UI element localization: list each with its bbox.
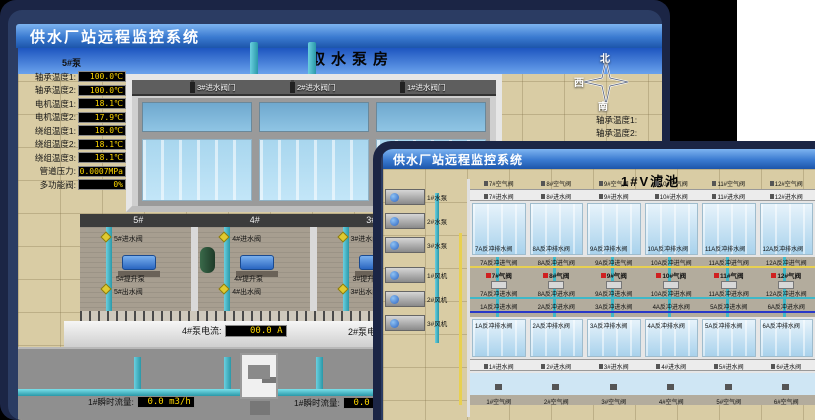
pump-current-meter: 4#泵电流: 00.0 A <box>182 324 287 337</box>
backwash-water-valve-label[interactable]: 5A反冲进水阀 <box>700 302 758 311</box>
equipment-box-icon <box>606 281 622 289</box>
backwash-drain-label: 3A反冲排水阀 <box>590 321 627 330</box>
back-window-title: 供水厂站远程监控系统 <box>30 26 200 47</box>
gas-valve-icon <box>543 273 548 278</box>
equipment-box <box>385 315 425 331</box>
filter-cell[interactable]: 11A反冲排水阀 <box>702 203 756 255</box>
bottom-channel <box>470 371 815 395</box>
backwash-drain-label: 12A反冲排水阀 <box>763 244 804 253</box>
filter-grid: 7#空气阀8#空气阀9#空气阀10#空气阀11#空气阀12#空气阀 7#进水阀8… <box>467 179 815 417</box>
meter-value-display[interactable]: 00.0 A <box>225 325 287 337</box>
gate-valve-icon <box>290 82 295 93</box>
gallery-equipment <box>470 281 528 289</box>
backwash-drain-label: 2A反冲排水阀 <box>533 321 570 330</box>
backwash-drain-label: 5A反冲排水阀 <box>705 321 742 330</box>
outlet-valve-label: 5#出水阀 <box>114 287 143 297</box>
backwash-water-valve-label[interactable]: 3A反冲进水阀 <box>585 302 643 311</box>
pool-cell <box>259 102 369 132</box>
top-filter-cells: 7A反冲排水阀 8A反冲排水阀 9A反冲排水阀 <box>470 201 815 257</box>
filter-scene: 1#V滤池 1#水泵 <box>383 169 815 420</box>
scene-title-pumphouse: 取水泵房 <box>310 48 394 69</box>
equipment-label: 1#水泵 <box>427 192 447 202</box>
air-valve-label[interactable]: 8#空气阀 <box>528 179 586 188</box>
backwash-air-valve-label[interactable]: 12A反冲进气阀 <box>758 258 815 267</box>
inlet-valve-label[interactable]: 8#进水阀 <box>528 192 586 201</box>
back-window-titlebar[interactable]: 供水厂站远程监控系统 <box>16 24 662 48</box>
pump-icon <box>390 241 399 250</box>
page-background-corner <box>737 0 815 148</box>
channel-valve[interactable] <box>470 373 528 395</box>
metric-value-display[interactable]: 100.0℃ <box>78 71 126 82</box>
top-air-valve-labels: 7#空气阀8#空气阀9#空气阀10#空气阀11#空气阀12#空气阀 <box>470 179 815 188</box>
gas-valve[interactable]: 12#气阀 <box>758 270 815 280</box>
metric-value-display[interactable]: 17.9℃ <box>78 112 126 123</box>
inlet-valve-label[interactable]: 6#进水阀 <box>758 362 815 371</box>
valve-gallery: 7A反冲进气阀8A反冲进气阀9A反冲进气阀10A反冲进气阀11A反冲进气阀12A… <box>470 257 815 317</box>
pump-bay: 5#进水阀 5#提升泵 5#出水阀 <box>80 227 191 311</box>
filter-cell[interactable]: 5A反冲排水阀 <box>702 319 756 357</box>
backwash-water-valve-label[interactable]: 7A反冲进水阀 <box>470 289 528 298</box>
valve-icon <box>655 181 659 186</box>
gate-valve-icon <box>400 82 405 93</box>
metric-value-display[interactable]: 0% <box>78 179 126 190</box>
valve-icon <box>656 364 660 369</box>
backwash-drain-label: 1A反冲排水阀 <box>475 321 512 330</box>
gas-valve-icon <box>601 273 606 278</box>
equipment-box <box>385 237 425 253</box>
pipe-stub <box>224 357 231 391</box>
equipment-box-icon <box>491 281 507 289</box>
gallery-equipment <box>585 281 643 289</box>
metric-row: 轴承温度2: 100.0℃ <box>26 84 136 98</box>
metric-label: 电机温度2: <box>26 111 76 123</box>
filter-cell[interactable]: 9A反冲排水阀 <box>587 203 641 255</box>
valve-icon <box>484 364 488 369</box>
filter-cell[interactable]: 8A反冲排水阀 <box>530 203 584 255</box>
gate-valve-icon <box>190 82 195 93</box>
valve-icon <box>712 194 716 199</box>
metric-label: 绕组温度2: <box>26 138 76 150</box>
filter-cell[interactable]: 7A反冲排水阀 <box>472 203 526 255</box>
metric-value-display[interactable]: 18.1℃ <box>78 98 126 109</box>
metric-label: 管道压力: <box>26 165 76 177</box>
metric-label: 多功能阀: <box>26 179 76 191</box>
air-valve-label[interactable]: 6#空气阀 <box>758 397 815 406</box>
air-valve-label[interactable]: 11#空气阀 <box>700 179 758 188</box>
air-valve-label[interactable]: 3#空气阀 <box>585 397 643 406</box>
filter-cell[interactable]: 2A反冲排水阀 <box>530 319 584 357</box>
lift-pump-icon[interactable] <box>240 255 274 270</box>
compass-icon: 北 西 南 <box>574 50 638 114</box>
bottom-inlet-labels: 1#进水阀2#进水阀3#进水阀4#进水阀5#进水阀6#进水阀 <box>470 362 815 371</box>
inlet-valve-label[interactable]: 5#进水阀 <box>700 362 758 371</box>
valve-icon <box>770 194 774 199</box>
valve-icon <box>667 384 674 390</box>
compass-south-label: 南 <box>598 98 608 113</box>
backwash-air-valve-label[interactable]: 9A反冲进气阀 <box>585 258 643 267</box>
equipment-unit[interactable]: 2#水泵 <box>385 209 465 233</box>
air-valve-label[interactable]: 7#空气阀 <box>470 179 528 188</box>
scada-desktop: 供水厂站远程监控系统 取水泵房 北 西 南 轴承 <box>0 0 815 420</box>
metric-value-display[interactable]: 18.1℃ <box>78 139 126 150</box>
backwash-drain-label: 6A反冲排水阀 <box>763 321 800 330</box>
pump-icon <box>390 319 399 328</box>
pump-bay-id: 4# <box>197 214 314 227</box>
metric-value-display[interactable]: 100.0℃ <box>78 85 126 96</box>
inlet-valve-label[interactable]: 9#进水阀 <box>585 192 643 201</box>
inlet-valve-label[interactable]: 7#进水阀 <box>470 192 528 201</box>
gate-valve-label: 1#进水阀门 <box>407 82 445 93</box>
metric-label: 轴承温度2: <box>596 127 637 140</box>
filter-cell[interactable]: 6A反冲排水阀 <box>760 319 814 357</box>
valve-icon <box>599 194 603 199</box>
backwash-air-valve-label[interactable]: 7A反冲进气阀 <box>470 258 528 267</box>
gas-valve[interactable]: 9#气阀 <box>585 270 643 280</box>
metric-label: 电机温度1: <box>26 98 76 110</box>
lift-pump-icon[interactable] <box>122 255 156 270</box>
meter-value-display[interactable]: 0.0 m3/h <box>137 396 195 408</box>
gas-valve-icon <box>771 273 776 278</box>
flow-equipment-cabinet[interactable] <box>240 353 278 399</box>
backwash-water-valve-label[interactable]: 12A反冲进水阀 <box>758 289 815 298</box>
valve-icon <box>771 364 775 369</box>
backwash-water-valve-label[interactable]: 9A反冲进水阀 <box>585 289 643 298</box>
metric-label: 轴承温度2: <box>26 84 76 96</box>
right-edge-metric-labels: 轴承温度1:轴承温度2: <box>596 114 637 140</box>
pump-icon <box>248 365 270 379</box>
bottom-filter-cells: 1A反冲排水阀 2A反冲排水阀 3A反冲排水阀 <box>470 317 815 359</box>
backwash-water-valve-label[interactable]: 1A反冲进水阀 <box>470 302 528 311</box>
front-window-titlebar[interactable]: 供水厂站远程监控系统 <box>383 149 815 169</box>
inlet-valve-label[interactable]: 1#进水阀 <box>470 362 528 371</box>
lift-pump-label: 4#提升泵 <box>234 274 263 284</box>
gate-valve[interactable]: 3#进水阀门 <box>190 82 235 93</box>
inlet-valve-label[interactable]: 4#进水阀 <box>643 362 701 371</box>
valve-icon <box>495 384 502 390</box>
pump-fan-column: 1#水泵 2#水泵 <box>385 185 465 335</box>
valve-icon <box>484 194 488 199</box>
pool-cell <box>259 139 369 201</box>
window-front-frame[interactable]: 供水厂站远程监控系统 1#V滤池 1#水泵 <box>373 141 815 420</box>
backwash-air-labels: 7A反冲进气阀8A反冲进气阀9A反冲进气阀10A反冲进气阀11A反冲进气阀12A… <box>470 258 815 267</box>
gas-valve[interactable]: 7#气阀 <box>470 270 528 280</box>
valve-icon <box>782 384 789 390</box>
metric-label: 轴承温度1: <box>26 71 76 83</box>
equipment-unit[interactable]: 3#风机 <box>385 311 465 335</box>
backwash-drain-label: 4A反冲排水阀 <box>648 321 685 330</box>
gas-valve-row: 7#气阀8#气阀9#气阀10#气阀11#气阀12#气阀 <box>470 270 815 280</box>
filter-cell[interactable]: 1A反冲排水阀 <box>472 319 526 357</box>
backwash-water-valve-label[interactable]: 4A反冲进水阀 <box>643 302 701 311</box>
backwash-drain-label: 7A反冲排水阀 <box>475 244 512 253</box>
equipment-unit[interactable]: 3#水泵 <box>385 233 465 257</box>
channel-valve[interactable] <box>585 373 643 395</box>
lift-pump-label: 5#提升泵 <box>116 274 145 284</box>
equipment-box <box>385 291 425 307</box>
inlet-valve-label[interactable]: 10#进水阀 <box>643 192 701 201</box>
gate-valve-label: 3#进水阀门 <box>197 82 235 93</box>
filter-cell[interactable]: 12A反冲排水阀 <box>760 203 814 255</box>
equipment-box <box>385 267 425 283</box>
flow-meter: 1#瞬时流量: 0.0 m3/h <box>88 396 195 408</box>
backwash-drain-label: 9A反冲排水阀 <box>590 244 627 253</box>
valve-icon <box>712 181 716 186</box>
meter-label: 1#瞬时流量: <box>294 397 340 409</box>
inlet-valve-label: 4#进水阀 <box>232 234 261 244</box>
gate-valve-label: 2#进水阀门 <box>297 82 335 93</box>
air-valve-label[interactable]: 2#空气阀 <box>528 397 586 406</box>
metric-value-display[interactable]: 0.0007MPa <box>78 166 126 177</box>
gas-valve[interactable]: 10#气阀 <box>643 270 701 280</box>
equipment-unit[interactable]: 1#风机 <box>385 263 465 287</box>
backwash-drain-label: 10A反冲排水阀 <box>648 244 689 253</box>
inlet-valve-label[interactable]: 11#进水阀 <box>700 192 758 201</box>
backwash-air-valve-label[interactable]: 8A反冲进气阀 <box>528 258 586 267</box>
backwash-drain-label: 8A反冲排水阀 <box>533 244 570 253</box>
metric-row: 轴承温度1: 100.0℃ <box>26 70 136 84</box>
air-valve-label[interactable]: 4#空气阀 <box>643 397 701 406</box>
backwash-water-labels-top: 7A反冲进水阀8A反冲进水阀9A反冲进水阀10A反冲进水阀11A反冲进水阀12A… <box>470 289 815 298</box>
gallery-equipment <box>758 281 815 289</box>
metric-value-display[interactable]: 18.1℃ <box>78 152 126 163</box>
backwash-air-valve-label[interactable]: 10A反冲进气阀 <box>643 258 701 267</box>
equipment-unit[interactable]: 2#风机 <box>385 287 465 311</box>
backwash-water-valve-label[interactable]: 6A反冲进水阀 <box>758 302 815 311</box>
metric-value-display[interactable]: 18.0℃ <box>78 125 126 136</box>
filter-cell[interactable]: 4A反冲排水阀 <box>645 319 699 357</box>
pipe-stub <box>134 357 141 391</box>
metric-row: 电机温度2: 17.9℃ <box>26 111 136 125</box>
equipment-unit[interactable]: 1#水泵 <box>385 185 465 209</box>
pool-cell <box>376 102 486 132</box>
pump-icon <box>390 193 399 202</box>
backwash-water-valve-label[interactable]: 8A反冲进水阀 <box>528 289 586 298</box>
metric-label: 绕组温度3: <box>26 152 76 164</box>
top-inlet-labels: 7#进水阀8#进水阀9#进水阀10#进水阀11#进水阀12#进水阀 <box>470 192 815 201</box>
backwash-drain-label: 11A反冲排水阀 <box>705 244 745 253</box>
tank-icon <box>200 247 215 273</box>
equipment-label: 3#风机 <box>427 318 447 328</box>
backwash-water-valve-label[interactable]: 2A反冲进水阀 <box>528 302 586 311</box>
inlet-valve-label[interactable]: 3#进水阀 <box>585 362 643 371</box>
metric-label: 轴承温度1: <box>596 114 637 127</box>
pump-metrics-panel: 轴承温度1: 100.0℃ 轴承温度2: 100.0℃ 电机温度1: 18.1℃ <box>26 70 136 192</box>
gas-valve-icon <box>486 273 491 278</box>
air-valve-label[interactable]: 9#空气阀 <box>585 179 643 188</box>
metric-label: 绕组温度1: <box>26 125 76 137</box>
gallery-equipment-row <box>470 281 815 289</box>
channel-valve[interactable] <box>700 373 758 395</box>
pool-gate-valves: 3#进水阀门 2#进水阀门 1#进水阀门 <box>132 81 496 95</box>
backwash-water-valve-label[interactable]: 11A反冲进水阀 <box>700 289 758 298</box>
valve-icon <box>655 194 659 199</box>
pool-cell <box>142 102 252 132</box>
backwash-air-valve-label[interactable]: 11A反冲进气阀 <box>700 258 758 267</box>
gate-valve[interactable]: 1#进水阀门 <box>400 82 445 93</box>
valve-icon <box>552 384 559 390</box>
backwash-water-valve-label[interactable]: 10A反冲进水阀 <box>643 289 701 298</box>
bottom-air-band: 1#空气阀2#空气阀3#空气阀4#空气阀5#空气阀6#空气阀 <box>470 395 815 405</box>
compass-north-label: 北 <box>600 50 610 65</box>
valve-icon <box>599 364 603 369</box>
gate-valve[interactable]: 2#进水阀门 <box>290 82 335 93</box>
gas-valve[interactable]: 11#气阀 <box>700 270 758 280</box>
metric-row: 绕组温度1: 18.0℃ <box>26 124 136 138</box>
pump-icon <box>390 295 399 304</box>
channel-valve[interactable] <box>758 373 815 395</box>
equipment-label: 1#风机 <box>427 270 447 280</box>
cyan-post <box>250 42 258 76</box>
channel-valve[interactable] <box>643 373 701 395</box>
equipment-label: 2#水泵 <box>427 216 447 226</box>
equipment-label: 3#水泵 <box>427 240 447 250</box>
front-window-title: 供水厂站远程监控系统 <box>393 151 523 168</box>
pipe-stub <box>316 357 323 391</box>
gallery-equipment <box>700 281 758 289</box>
metric-row: 绕组温度3: 18.1℃ <box>26 151 136 165</box>
bottom-inlet-band: 1#进水阀2#进水阀3#进水阀4#进水阀5#进水阀6#进水阀 <box>470 359 815 371</box>
equipment-box <box>385 189 425 205</box>
equipment-box-icon <box>663 281 679 289</box>
filter-cell[interactable]: 10A反冲排水阀 <box>645 203 699 255</box>
inlet-valve-label[interactable]: 2#进水阀 <box>528 362 586 371</box>
bottom-air-labels: 1#空气阀2#空气阀3#空气阀4#空气阀5#空气阀6#空气阀 <box>470 397 815 406</box>
equipment-box-icon <box>778 281 794 289</box>
pump-icon <box>390 271 399 280</box>
valve-icon <box>770 181 774 186</box>
air-valve-label[interactable]: 5#空气阀 <box>700 397 758 406</box>
pump-group-label: 5#泵 <box>62 56 81 69</box>
meter-label: 4#泵电流: <box>182 324 222 337</box>
metric-row: 绕组温度2: 18.1℃ <box>26 138 136 152</box>
outlet-valve-label: 4#出水阀 <box>232 287 261 297</box>
valve-icon <box>599 181 603 186</box>
metric-row: 电机温度1: 18.1℃ <box>26 97 136 111</box>
window-front[interactable]: 供水厂站远程监控系统 1#V滤池 1#水泵 <box>381 149 815 420</box>
pump-bay-id: 5# <box>80 214 197 227</box>
inlet-valve-label[interactable]: 12#进水阀 <box>758 192 815 201</box>
valve-icon <box>610 384 617 390</box>
compass-west-label: 西 <box>574 74 584 89</box>
metric-row: 多功能阀: 0% <box>26 178 136 192</box>
cyan-post <box>308 42 316 76</box>
air-valve-label[interactable]: 12#空气阀 <box>758 179 815 188</box>
valve-icon <box>541 364 545 369</box>
equipment-box-icon <box>721 281 737 289</box>
gas-valve[interactable]: 8#气阀 <box>528 270 586 280</box>
backwash-water-labels-bottom: 1A反冲进水阀2A反冲进水阀3A反冲进水阀4A反冲进水阀5A反冲进水阀6A反冲进… <box>470 302 815 311</box>
air-valve-label[interactable]: 1#空气阀 <box>470 397 528 406</box>
pool-cell <box>142 139 252 201</box>
filter-cell[interactable]: 3A反冲排水阀 <box>587 319 641 357</box>
cabinet-base <box>250 401 270 415</box>
top-inlet-band: 7#进水阀8#进水阀9#进水阀10#进水阀11#进水阀12#进水阀 <box>470 189 815 201</box>
valve-icon <box>725 384 732 390</box>
gallery-equipment <box>528 281 586 289</box>
metric-row: 管道压力: 0.0007MPa <box>26 165 136 179</box>
gas-valve-icon <box>714 273 719 278</box>
valve-icon <box>714 364 718 369</box>
gallery-equipment <box>643 281 701 289</box>
valve-icon <box>541 194 545 199</box>
channel-valve[interactable] <box>528 373 586 395</box>
equipment-label: 2#风机 <box>427 294 447 304</box>
backwash-water-pipe-bottom <box>470 311 815 313</box>
valve-icon <box>484 181 488 186</box>
equipment-box-icon <box>548 281 564 289</box>
gas-valve-icon <box>656 273 661 278</box>
valve-icon <box>541 181 545 186</box>
inlet-valve-label: 5#进水阀 <box>114 234 143 244</box>
meter-label: 1#瞬时流量: <box>88 396 134 408</box>
pump-icon <box>390 217 399 226</box>
equipment-box <box>385 213 425 229</box>
air-valve-label[interactable]: 10#空气阀 <box>643 179 701 188</box>
